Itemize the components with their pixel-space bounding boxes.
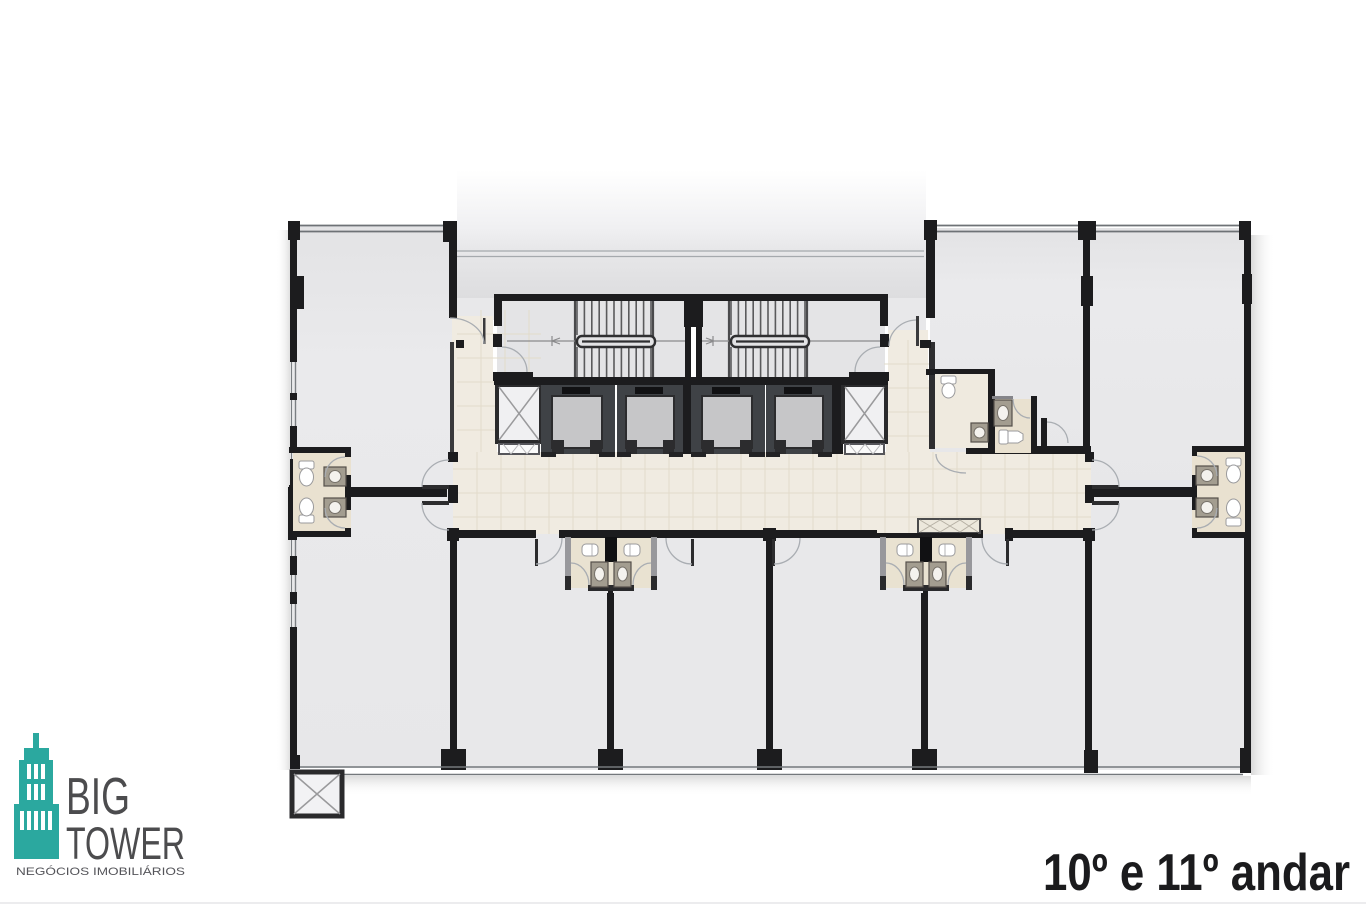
- svg-text:TOWER: TOWER: [66, 818, 185, 869]
- svg-text:10º e 11º andar: 10º e 11º andar: [1043, 844, 1350, 902]
- svg-text:NEGÓCIOS IMOBILIÁRIOS: NEGÓCIOS IMOBILIÁRIOS: [16, 865, 185, 878]
